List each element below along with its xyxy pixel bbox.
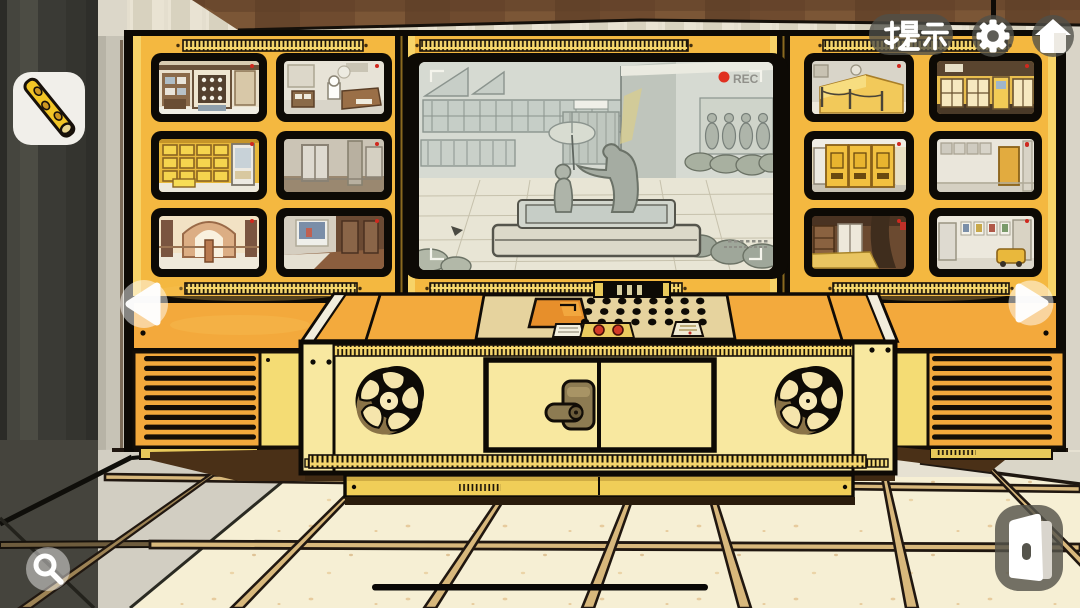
svg-text:REC: REC [733, 72, 759, 86]
